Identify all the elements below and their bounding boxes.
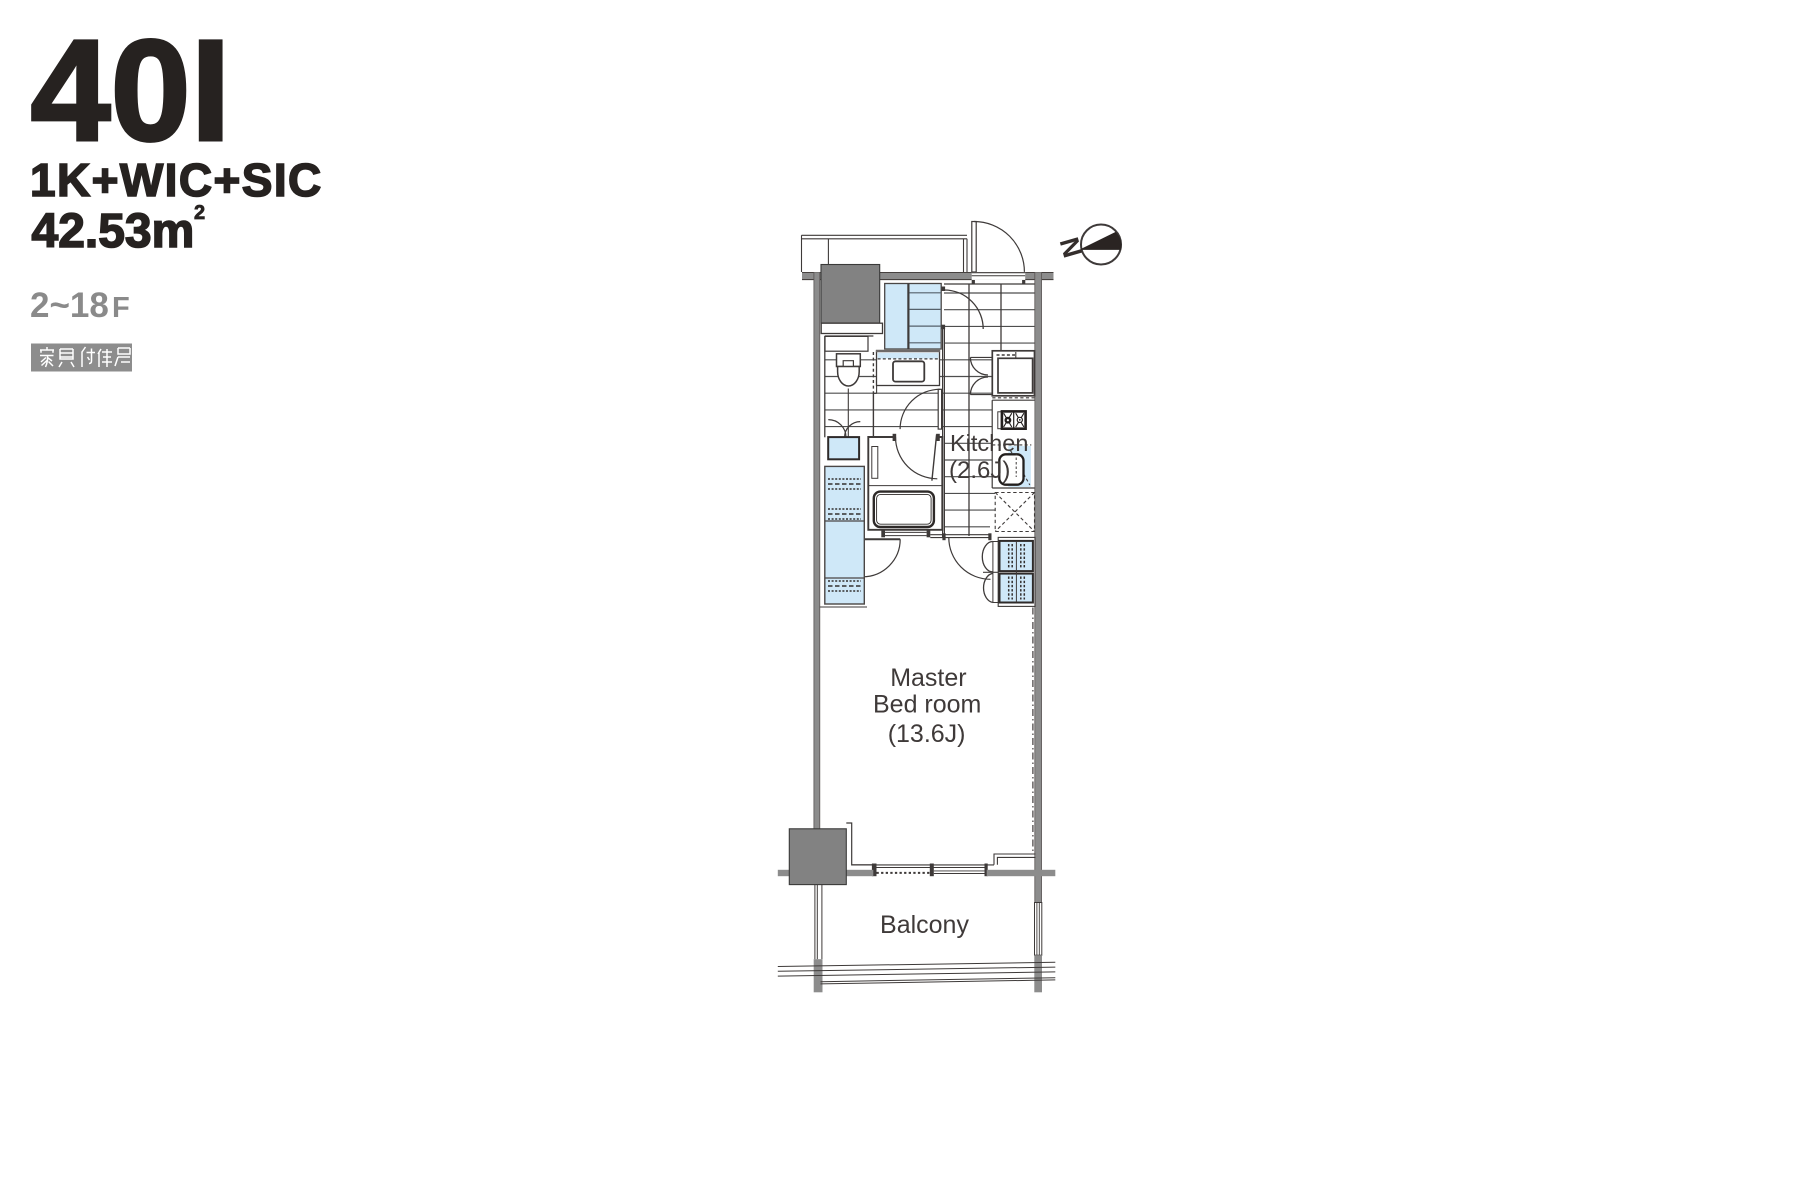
- svg-text:2~18: 2~18: [30, 286, 109, 325]
- svg-text:Balcony: Balcony: [880, 911, 969, 939]
- svg-text:1K+WIC+SIC: 1K+WIC+SIC: [30, 154, 323, 206]
- svg-text:40I: 40I: [31, 10, 231, 171]
- svg-text:Bed room: Bed room: [873, 691, 981, 719]
- svg-text:F: F: [112, 292, 130, 324]
- svg-text:(2.6J): (2.6J): [949, 457, 1010, 484]
- svg-text:42.53m: 42.53m: [32, 205, 195, 258]
- svg-text:Kitchen: Kitchen: [950, 430, 1028, 456]
- svg-text:2: 2: [194, 202, 205, 224]
- svg-text:Master: Master: [890, 664, 966, 692]
- svg-text:(13.6J): (13.6J): [888, 720, 966, 748]
